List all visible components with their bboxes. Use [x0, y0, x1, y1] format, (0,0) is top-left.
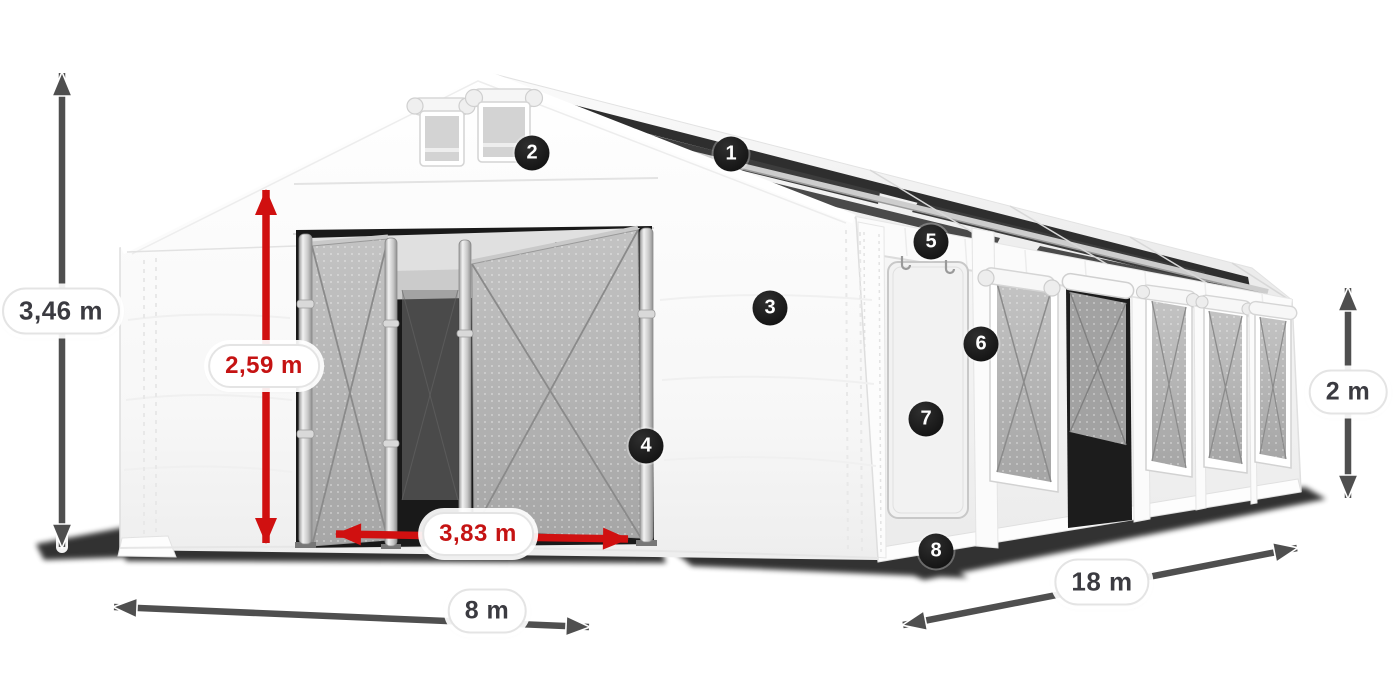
- feature-marker-3[interactable]: 3: [753, 291, 788, 326]
- marker-number: 2: [526, 142, 537, 165]
- dimension-value: 3,46 m: [19, 296, 103, 327]
- entrance-mesh-panel-right: [472, 228, 641, 538]
- side-window-1: [978, 267, 1060, 492]
- marker-number: 7: [920, 408, 931, 431]
- feature-marker-7[interactable]: 7: [909, 402, 944, 437]
- dimension-value: 3,83 m: [439, 520, 517, 548]
- tent-dimension-diagram: 3,46 m 2,59 m 3,83 m 8 m 18 m 2 m 1 2 3 …: [0, 0, 1400, 700]
- marker-number: 6: [975, 333, 986, 356]
- dimension-value: 2,59 m: [225, 352, 303, 380]
- dimension-label-entrance-width: 3,83 m: [422, 512, 534, 556]
- entrance-mesh-panel-left: [312, 237, 388, 546]
- side-window-2: [1137, 284, 1200, 477]
- dimension-label-tent-length: 18 m: [1054, 559, 1149, 606]
- dimension-value: 18 m: [1071, 567, 1132, 598]
- marker-number: 1: [725, 143, 736, 166]
- feature-marker-8[interactable]: 8: [919, 534, 954, 569]
- side-window-3: [1196, 294, 1254, 473]
- dimension-value: 8 m: [465, 597, 510, 626]
- dimension-value: 2 m: [1326, 378, 1371, 407]
- side-open-section: [1061, 272, 1135, 528]
- side-window-4: [1248, 301, 1297, 468]
- side-door: [888, 256, 968, 518]
- feature-marker-1[interactable]: 1: [714, 137, 749, 172]
- dimension-label-tent-width: 8 m: [448, 589, 527, 634]
- marker-number: 4: [640, 435, 651, 458]
- feature-marker-6[interactable]: 6: [964, 327, 999, 362]
- marker-number: 3: [764, 297, 775, 320]
- marker-number: 8: [930, 540, 941, 563]
- dimension-label-entrance-height: 2,59 m: [208, 344, 320, 388]
- tent-illustration: [0, 0, 1400, 700]
- dimension-label-total-height: 3,46 m: [2, 288, 120, 335]
- marker-number: 5: [925, 231, 936, 254]
- feature-marker-2[interactable]: 2: [515, 136, 550, 171]
- feature-marker-4[interactable]: 4: [629, 429, 664, 464]
- front-entrance: [295, 226, 657, 549]
- feature-marker-5[interactable]: 5: [914, 225, 949, 260]
- dimension-label-side-height: 2 m: [1309, 370, 1388, 415]
